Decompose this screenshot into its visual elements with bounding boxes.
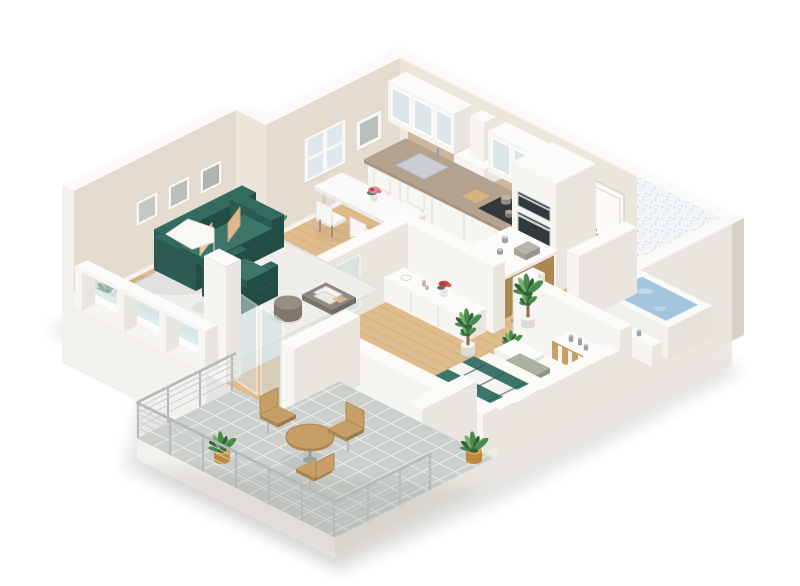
faucet-spout bbox=[437, 149, 438, 157]
cooking-pan bbox=[505, 210, 513, 218]
bedroom-door-handle bbox=[510, 319, 513, 322]
balcony-table-top bbox=[286, 424, 334, 449]
floor-plan-3d-render bbox=[0, 0, 800, 586]
console-bottle bbox=[569, 334, 573, 342]
cooking-pot bbox=[501, 195, 511, 205]
console-bottle bbox=[578, 337, 582, 345]
bath-bottle bbox=[637, 329, 641, 336]
pot-lid bbox=[502, 236, 508, 244]
rose bbox=[447, 283, 452, 287]
pot-lid bbox=[497, 248, 503, 255]
decor-plate bbox=[401, 275, 411, 280]
rose bbox=[440, 282, 445, 286]
console-bottle bbox=[584, 344, 588, 351]
water-highlight bbox=[637, 288, 653, 294]
floorplan-page: 3D isometric apartment floor plan render… bbox=[0, 0, 800, 586]
candle bbox=[422, 280, 426, 286]
flower-red bbox=[377, 190, 382, 194]
flower-red bbox=[370, 188, 375, 192]
candle bbox=[425, 285, 429, 290]
water-highlight bbox=[654, 306, 666, 311]
